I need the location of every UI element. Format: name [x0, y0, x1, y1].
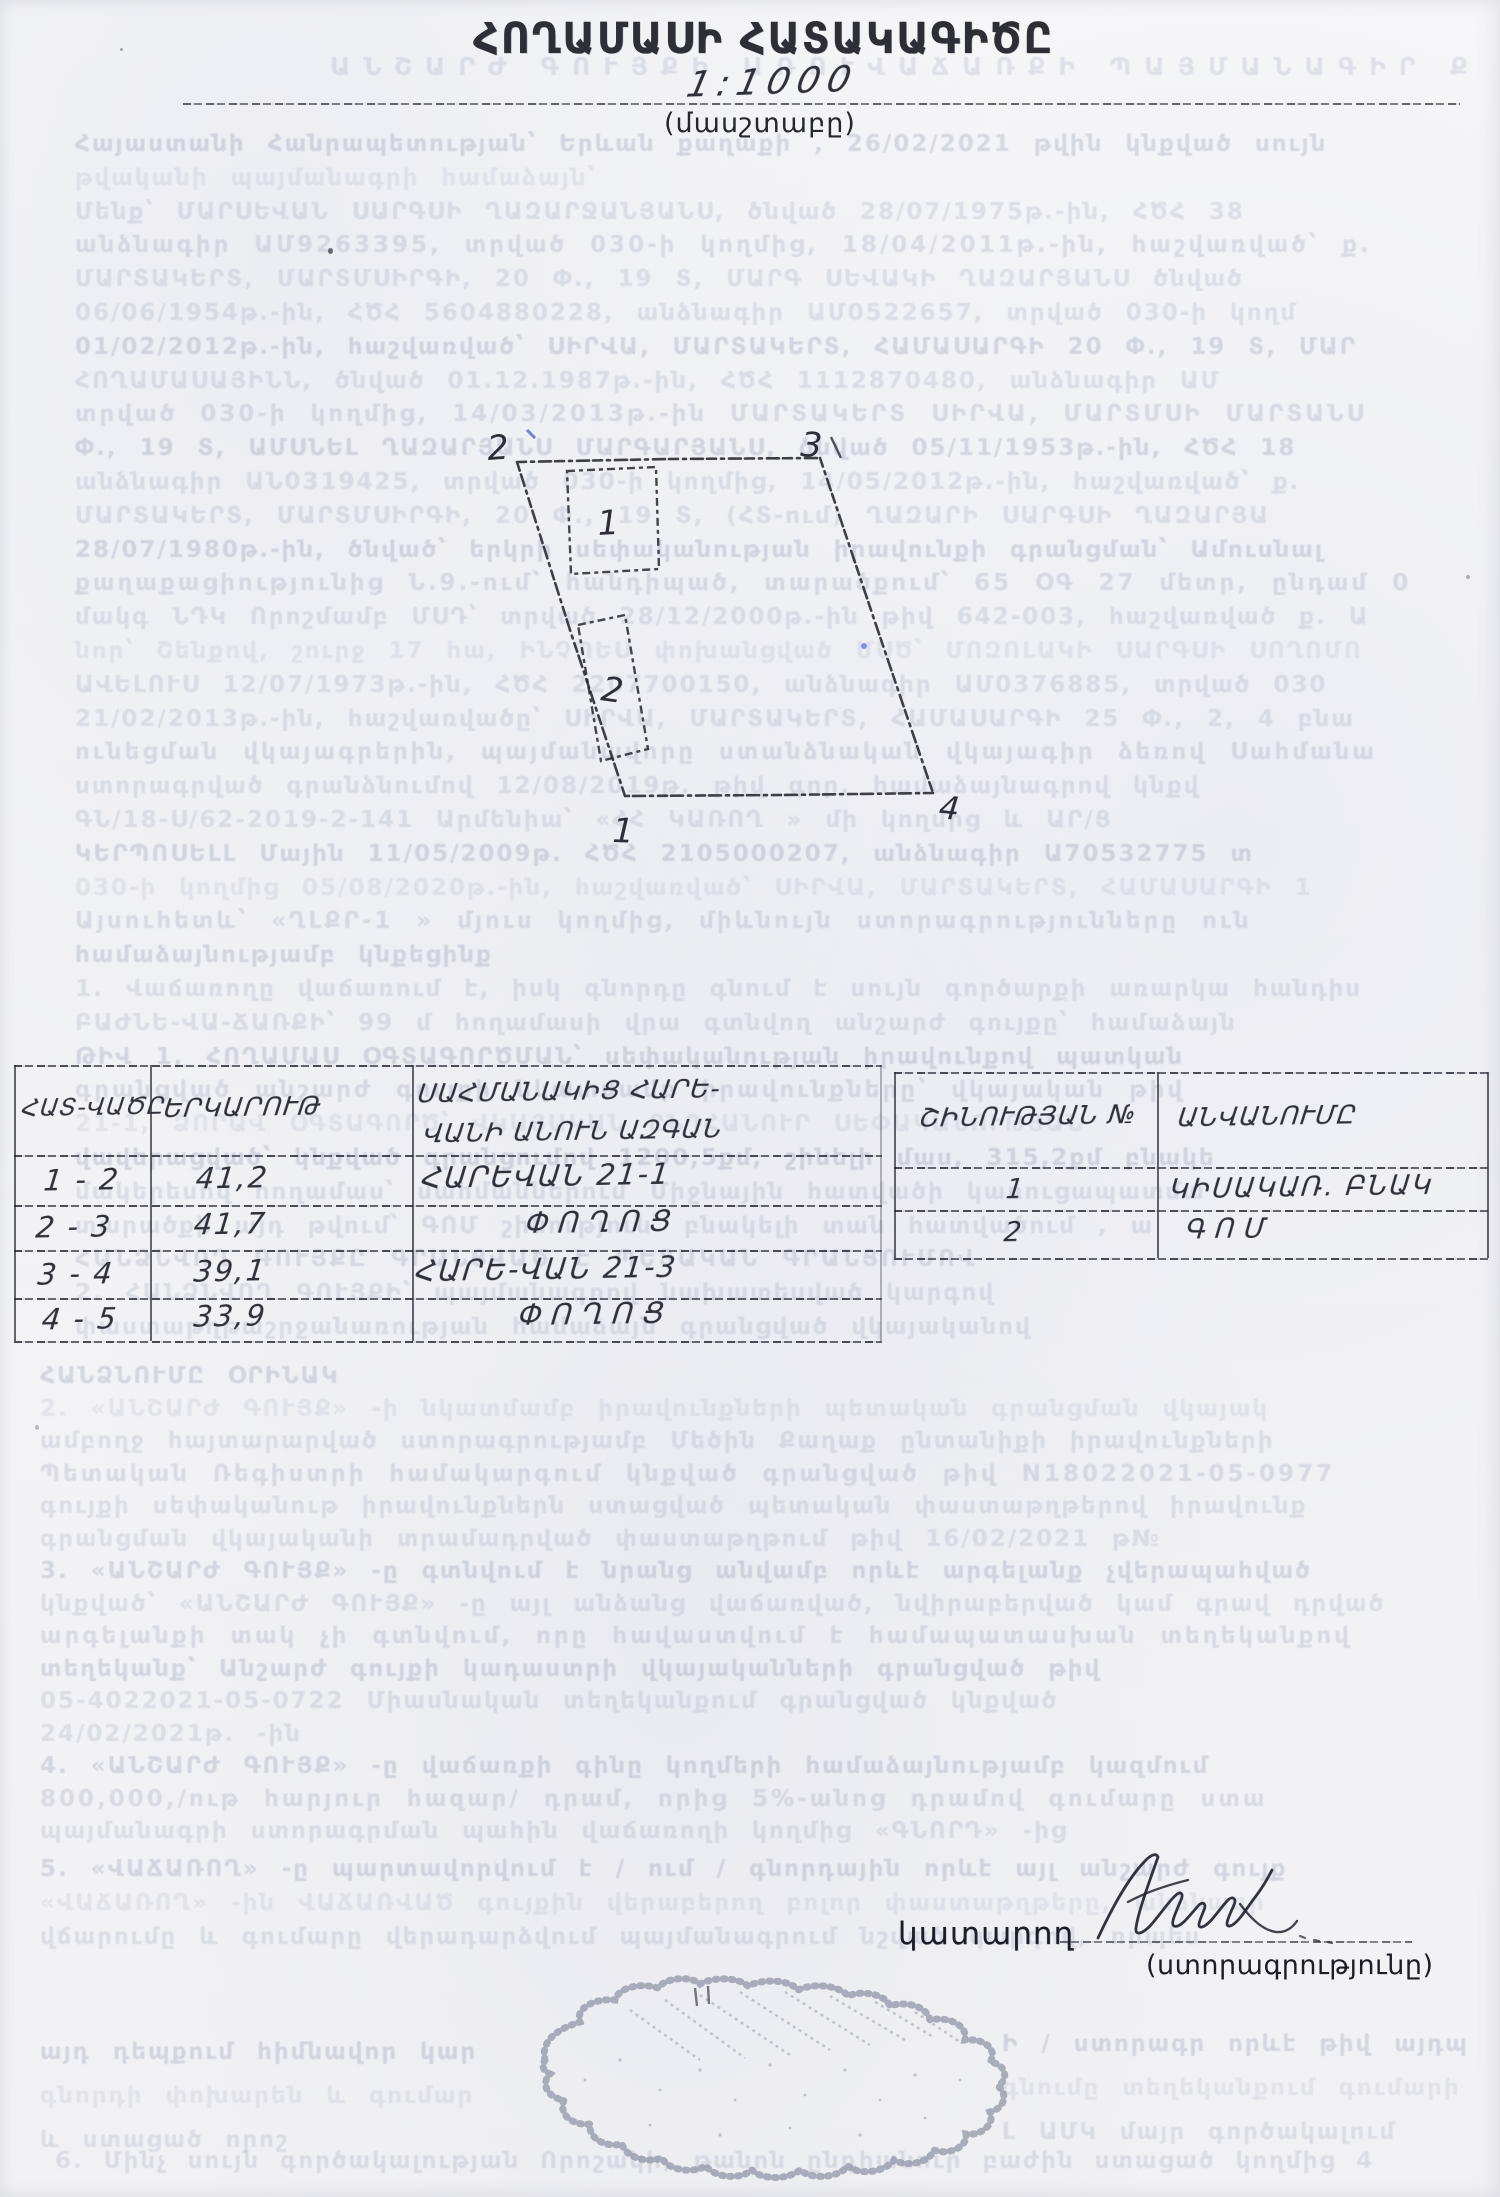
bleed-line: 800,000,/ութ հարյուր հազար/ դրամ, որից 5… — [40, 1783, 1485, 1816]
table-line — [14, 1298, 882, 1300]
length-cell: 33,9 — [192, 1298, 268, 1333]
neighbor-cell: ՀԱՐԵ-ՎԱՆ 21-3 — [414, 1250, 679, 1289]
bleed-line: 06/06/1954թ.-ին, ՀԾՀ 5604880228, անձնագի… — [75, 297, 1480, 331]
bleed-line: Մենք՝ ՄԱՐՍԵՎԱՆ ՍԱՐԳՍԻ ՂԱԶԱՐՋԱՆՅԱՆՍ, ծնվա… — [75, 196, 1480, 230]
segment-cell: 3 - 4 — [36, 1256, 116, 1291]
table-line — [14, 1250, 882, 1252]
blue-pen-mark-top — [527, 430, 535, 438]
stamp-speckles — [584, 2058, 962, 2136]
building-2-label: 2 — [599, 669, 626, 712]
bleed-line: 01/02/2012թ.-ին, հաշվառված՝ ՍԻՐՎԱ, ՄԱՐՏԱ… — [75, 331, 1480, 365]
scale-label: (մասշտաբը) — [664, 108, 856, 139]
col-header-segment: ՀԱՏ-ՎԱԾԸ — [20, 1092, 168, 1123]
scan-speck — [328, 248, 333, 254]
bleed-line: արգելանքի տակ չի գտնվում, որը հավաստվում… — [40, 1620, 1485, 1653]
bleed-line: 3. «ԱՆՇԱՐԺ ԳՈՒՅՔ» -ը գտնվում է նրանց անվ… — [40, 1555, 1485, 1588]
table-line — [894, 1072, 1490, 1074]
col-header-length: ԵՐԿԱՐՈՒԹ — [162, 1092, 323, 1125]
bleed-line: անձնագիր ԱՄ9263395, տրված 030-ի կողմից, … — [75, 229, 1480, 263]
blue-pen-mark-right — [861, 643, 867, 649]
neighbor-cell: ՓՈՂՈՑ — [517, 1296, 675, 1333]
building-name-cell: ԳՈՄ — [1184, 1213, 1276, 1246]
col-header-building-name: ԱՆՎԱՆՈՒՄԸ — [1176, 1100, 1359, 1133]
table-line — [14, 1065, 882, 1067]
building-1-label: 1 — [596, 503, 620, 544]
measurements-table: ՀԱՏ-ՎԱԾԸ ԵՐԿԱՐՈՒԹ ՍԱՀՄԱՆԱԿԻՑ ՀԱՐԵ- ՎԱՆԻ … — [14, 1065, 882, 1343]
scale-value: 1:1000 — [683, 59, 862, 106]
col-header-building-number: ՇԻՆՈՒԹՅԱՆ № — [918, 1100, 1138, 1134]
plot-drawing: 2 3 4 1 1 2 — [420, 400, 1020, 880]
bleed-line: կնքված՝ «ԱՆՇԱՐԺ ԳՈՒՅՔ» -ը այլ անձանց վաճ… — [40, 1588, 1485, 1621]
scan-speck — [120, 48, 123, 51]
bleed-line: գնորդի փոխարեն և գումար — [40, 2074, 510, 2118]
scanned-document-page: ԱՆՇԱՐԺ ԳՈՒՅՔԻ ԱՌՈՒՎԱՃԱՌՔԻ ՊԱՅՄԱՆԱԳԻՐ ՔԱՂ… — [0, 0, 1500, 2197]
table-line — [1487, 1072, 1489, 1258]
bleed-line: 05-4022021-05-0722 Միասնական տեղեկանքում… — [40, 1685, 1485, 1718]
table-line — [894, 1167, 1490, 1169]
col-header-neighbor-line1: ՍԱՀՄԱՆԱԿԻՑ ՀԱՐԵ- — [416, 1074, 723, 1109]
signature-caption: (ստորագրությունը) — [1146, 1950, 1434, 1981]
bleed-line: 1. Վաճառողը վաճառում է, իսկ գնորդը գնում… — [75, 973, 1480, 1007]
segment-cell: 2 - 3 — [34, 1209, 114, 1244]
table-line — [894, 1210, 1490, 1212]
bleed-line: 24/02/2021թ. -ին — [40, 1718, 1485, 1751]
length-cell: 41,2 — [194, 1160, 270, 1195]
bleed-line: գրանցման վկայականի տրամադրված փաստաթղթու… — [40, 1523, 1485, 1556]
table-line — [14, 1341, 882, 1343]
bleed-text-block-bottom-left: այդ դեպքում հիմնավոր կարգնորդի փոխարեն և… — [40, 2030, 510, 2162]
segment-cell: 4 - 5 — [40, 1301, 120, 1336]
table-line — [1157, 1072, 1159, 1258]
bleed-line: ամբողջ հայտարարված ստորագրությամբ Մեծին … — [40, 1425, 1485, 1458]
bleed-line: ԲԱԺՆԵ-ՎԱ-ՃԱՌՔԻ՝ 99 մ հողամասի վրա գտնվող… — [75, 1007, 1480, 1041]
table-line — [14, 1205, 882, 1207]
bleed-line: տեղեկանք՝ Անշարժ գույքի կադաստրի վկայակա… — [40, 1653, 1485, 1686]
neighbor-cell: ՓՈՂՈՑ — [524, 1204, 682, 1241]
buildings-table: ՇԻՆՈՒԹՅԱՆ № ԱՆՎԱՆՈՒՄԸ 1 ԿԻՍԱԿԱՌ. ԲՆԱԿ 2 … — [894, 1072, 1490, 1258]
segment-cell: 1 - 2 — [42, 1162, 122, 1197]
bleed-line: համաձայնությամբ կնքեցինք — [75, 939, 1480, 973]
table-line — [880, 1065, 882, 1341]
scale-underline — [183, 103, 1460, 105]
scan-speck — [35, 1425, 39, 1430]
bleed-line: 4. «ԱՆՇԱՐԺ ԳՈՒՅՔ» -ը վաճառքի գինը կողմեր… — [40, 1750, 1485, 1783]
plot-point-label-4: 4 — [937, 788, 961, 828]
bleed-line: Ի / ստորագր որևէ թիվ այդպ — [1002, 2022, 1487, 2066]
bleed-line: ՀՈՂԱՄԱՍԱՅԻՆՆ, ծնված 01.12.1987թ.-ին, ՀԾՀ… — [75, 365, 1480, 399]
col-header-neighbor-line2: ՎԱՆԻ ԱՆՈՒՆ ԱԶԳԱՆ — [422, 1114, 725, 1149]
building-name-cell: ԿԻՍԱԿԱՌ. ԲՆԱԿ — [1168, 1170, 1436, 1206]
building-number-cell: 2 — [1002, 1217, 1024, 1248]
parcel-boundary — [517, 458, 933, 796]
table-line — [14, 1065, 16, 1341]
scan-speck — [1466, 575, 1470, 579]
bleed-line: գույքի սեփականութ իրավունքներն ստացված պ… — [40, 1490, 1485, 1523]
plot-point-label-2: 2 — [486, 428, 510, 469]
plot-point-label-1: 1 — [612, 811, 635, 852]
stamp-sketch — [520, 1965, 1030, 2190]
table-line — [894, 1072, 896, 1258]
bleed-text-block-bottom-right: Ի / ստորագր որևէ թիվ այդպգնումը տեղեկանք… — [1002, 2022, 1487, 2154]
bleed-line: 2. «ԱՆՇԱՐԺ ԳՈՒՅՔ» -ի նկատմամբ իրավունքնե… — [40, 1393, 1485, 1426]
length-cell: 41,7 — [192, 1206, 268, 1241]
bleed-line: գնումը տեղեկանքում գումարի — [1002, 2066, 1487, 2110]
table-line — [412, 1065, 414, 1341]
bleed-line: թվականի պայմանագրի համաձայն՝ — [75, 162, 1480, 196]
bleed-line: Պետական Ռեգիստրի համակարգում կնքված գրան… — [40, 1458, 1485, 1491]
bleed-text-block-mid: ՀԱՆՁՆՈՒՄԸ ՕՐԻՆԱԿ2. «ԱՆՇԱՐԺ ԳՈՒՅՔ» -ի նկա… — [40, 1360, 1485, 1848]
bleed-line: այդ դեպքում հիմնավոր կար — [40, 2030, 510, 2074]
building-number-cell: 1 — [1004, 1174, 1026, 1205]
table-line — [894, 1258, 1490, 1260]
bleed-line: Այսուհետև՝ «ՂԼՔՐ-1 » մյուս կողմից, միևնո… — [75, 905, 1480, 939]
page-title: ՀՈՂԱՄԱՍԻ ՀԱՏԱԿԱԳԻԾԸ — [473, 14, 1054, 64]
plot-point-3-tick — [831, 437, 841, 458]
bleed-line: ՄԱՐՏԱԿԵՐՏ, ՄԱՐՏՄՍԻՐԳԻ, 20 Փ., 19 Տ, ՄԱՐԳ… — [75, 263, 1480, 297]
plot-point-label-3: 3 — [800, 425, 824, 466]
length-cell: 39,1 — [192, 1253, 268, 1288]
table-line — [14, 1155, 882, 1157]
bleed-line: ՀԱՆՁՆՈՒՄԸ ՕՐԻՆԱԿ — [40, 1360, 1485, 1393]
stamp-outline — [543, 1979, 1005, 2178]
neighbor-cell: ՀԱՐԵՎԱՆ 21-1 — [420, 1157, 673, 1195]
